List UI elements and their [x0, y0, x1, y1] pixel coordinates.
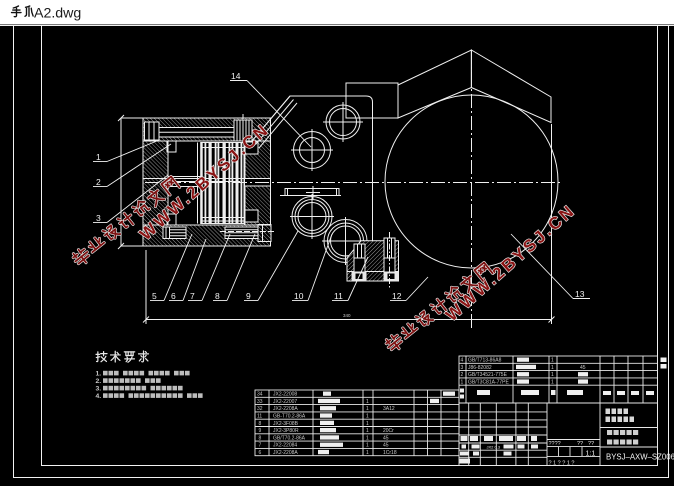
svg-text:GB/T713-86A8: GB/T713-86A8 — [468, 358, 502, 364]
svg-text:9: 9 — [259, 428, 262, 434]
svg-text:12: 12 — [392, 291, 402, 301]
svg-text:JX2-2208A: JX2-2208A — [273, 450, 298, 456]
svg-text:1: 1 — [366, 435, 369, 441]
svg-text:8: 8 — [215, 291, 220, 301]
svg-text:13: 13 — [575, 289, 585, 299]
svg-text:JX2 0.3: JX2 0.3 — [487, 445, 501, 450]
svg-text:6: 6 — [259, 450, 262, 456]
svg-text:1: 1 — [366, 414, 369, 420]
svg-text:1Cr18: 1Cr18 — [383, 450, 397, 456]
svg-text:GB/T34521-775E: GB/T34521-775E — [468, 372, 508, 378]
svg-text:GB/T70.2-86A: GB/T70.2-86A — [273, 435, 306, 441]
svg-text:7: 7 — [259, 443, 262, 449]
svg-text:45: 45 — [580, 365, 586, 371]
svg-text:14: 14 — [231, 71, 241, 81]
svg-text:A2.dwg: A2.dwg — [34, 6, 81, 22]
svg-text:2.: 2. — [96, 378, 102, 385]
svg-text:4.: 4. — [96, 393, 102, 400]
svg-text:GB/T3C81A-77PE: GB/T3C81A-77PE — [468, 380, 510, 386]
svg-text:1: 1 — [366, 399, 369, 405]
svg-text:2: 2 — [461, 372, 464, 378]
svg-text:? 1 ? ? 1 ?: ? 1 ? ? 1 ? — [549, 461, 575, 467]
svg-text:3: 3 — [96, 213, 101, 223]
svg-text:1: 1 — [461, 380, 464, 386]
svg-text:1: 1 — [551, 372, 554, 378]
svg-text:1: 1 — [96, 152, 101, 162]
svg-text:1:1: 1:1 — [586, 451, 596, 458]
svg-text:??: ?? — [588, 441, 594, 447]
svg-text:3: 3 — [461, 365, 464, 371]
svg-text:4: 4 — [461, 358, 464, 364]
svg-text:JX2-2208A: JX2-2208A — [273, 406, 298, 412]
svg-text:5: 5 — [152, 291, 157, 301]
svg-text:JX2-22008: JX2-22008 — [273, 392, 297, 398]
svg-text:????: ???? — [549, 441, 561, 447]
svg-text:2: 2 — [96, 177, 101, 187]
svg-text:7: 7 — [190, 291, 195, 301]
svg-text:33: 33 — [257, 399, 263, 405]
svg-text:GB-T70.2-86A: GB-T70.2-86A — [273, 414, 306, 420]
svg-text:32: 32 — [257, 406, 263, 412]
svg-text:1: 1 — [551, 358, 554, 364]
svg-text:JX2-3F08B: JX2-3F08B — [273, 421, 299, 427]
svg-text:??: ?? — [577, 441, 583, 447]
svg-text:10: 10 — [294, 291, 304, 301]
svg-text:45: 45 — [383, 443, 389, 449]
svg-text:JX2-3P80R: JX2-3P80R — [273, 428, 299, 434]
svg-text:1: 1 — [551, 380, 554, 386]
svg-text:8: 8 — [259, 421, 262, 427]
svg-text:340: 340 — [343, 313, 351, 318]
svg-text:9: 9 — [246, 291, 251, 301]
svg-text:1.: 1. — [96, 371, 102, 378]
svg-text:11: 11 — [257, 414, 262, 420]
svg-text:8: 8 — [259, 435, 262, 441]
svg-text:BYSJ–AXW–SZ006: BYSJ–AXW–SZ006 — [606, 452, 674, 461]
svg-text:34: 34 — [257, 392, 263, 398]
svg-text:11: 11 — [334, 291, 343, 301]
svg-text:20Cr: 20Cr — [383, 428, 394, 434]
svg-text:1: 1 — [366, 428, 369, 434]
svg-text:45: 45 — [383, 435, 389, 441]
svg-text:1: 1 — [551, 365, 554, 371]
svg-text:JX2-22007: JX2-22007 — [273, 399, 297, 405]
svg-text:6: 6 — [171, 291, 176, 301]
svg-text:J86-82082: J86-82082 — [468, 365, 492, 371]
svg-text:1: 1 — [366, 421, 369, 427]
svg-text:1: 1 — [366, 450, 369, 456]
svg-text:3.: 3. — [96, 386, 102, 393]
svg-text:1: 1 — [366, 406, 369, 412]
svg-text:1: 1 — [366, 443, 369, 449]
svg-text:JX2-22084: JX2-22084 — [273, 443, 297, 449]
svg-text:3A12: 3A12 — [383, 406, 395, 412]
